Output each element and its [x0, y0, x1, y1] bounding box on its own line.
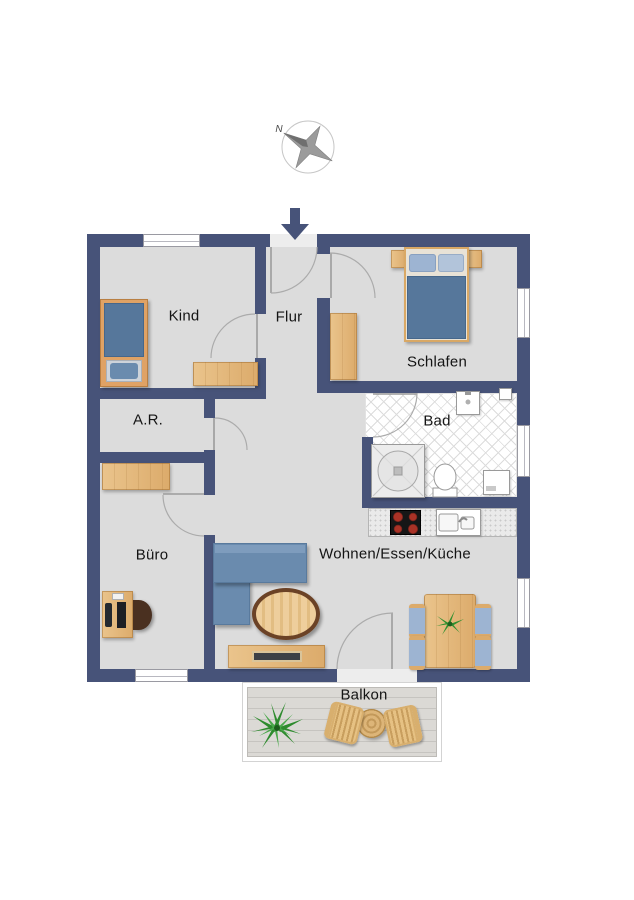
entrance-arrow	[281, 208, 309, 240]
floor-plan-canvas: N Kind Flur Schlafen A.R. Bad Büro Wohne…	[0, 0, 634, 900]
room-label-kind: Kind	[169, 308, 200, 325]
cooktop-burners	[393, 512, 417, 533]
room-label-wohnen: Wohnen/Essen/Küche	[319, 546, 471, 563]
buero-door-arc	[163, 495, 204, 536]
room-label-bad: Bad	[423, 413, 450, 430]
washbasin-faucet	[465, 391, 471, 395]
compass-rose: N	[272, 112, 344, 182]
room-label-balkon: Balkon	[340, 687, 387, 704]
balcony-door-arc	[337, 613, 393, 669]
room-label-flur: Flur	[276, 309, 303, 326]
schlafen-door-arc	[330, 253, 375, 298]
shower-detail	[373, 446, 423, 496]
room-label-schlafen: Schlafen	[407, 354, 467, 371]
room-label-ar: A.R.	[133, 412, 163, 429]
compass-north-label: N	[275, 124, 283, 135]
washbasin-drain	[466, 400, 471, 405]
ar-door-arc	[215, 418, 247, 450]
bad-door-arc	[373, 393, 417, 437]
table-plant	[436, 610, 464, 635]
room-label-buero: Büro	[136, 547, 169, 564]
kind-door-arc	[211, 314, 255, 358]
balcony-plant	[251, 702, 303, 748]
sink-detail	[439, 514, 474, 531]
plan-vector-overlay: N	[0, 0, 634, 900]
toilet	[433, 464, 457, 497]
entrance-door-arc	[271, 247, 317, 293]
